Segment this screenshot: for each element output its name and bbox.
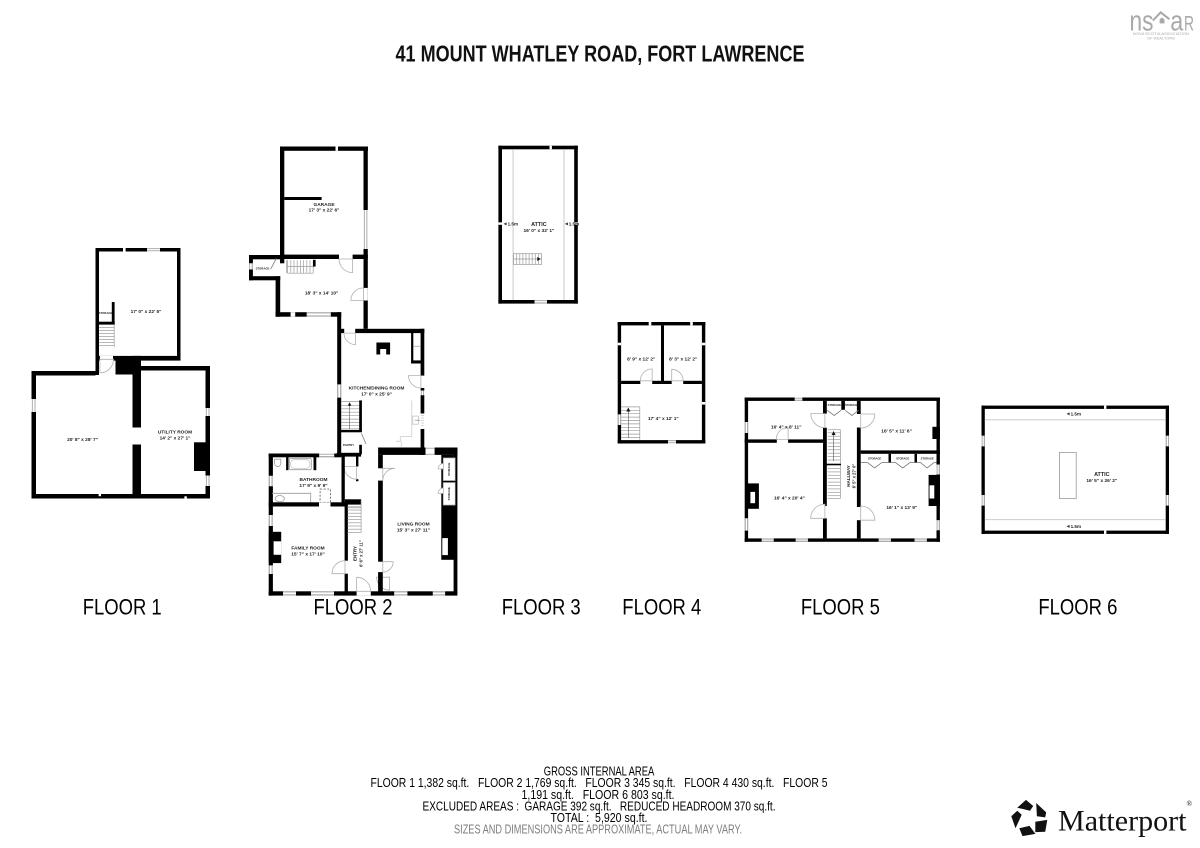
svg-text:ENTRY: ENTRY: [352, 546, 357, 561]
svg-text:STORAGE: STORAGE: [868, 457, 881, 461]
svg-text:HALLWAY: HALLWAY: [846, 465, 851, 487]
svg-text:STORAGE: STORAGE: [447, 487, 451, 500]
svg-text:STORAGE: STORAGE: [921, 457, 934, 461]
svg-text:ATTIC: ATTIC: [531, 222, 547, 228]
svg-text:20' 8" x 28' 7": 20' 8" x 28' 7": [67, 437, 98, 443]
svg-text:8' 3" x 12' 2": 8' 3" x 12' 2": [669, 356, 697, 362]
svg-text:GARAGE: GARAGE: [313, 202, 335, 208]
svg-text:STORAGE: STORAGE: [99, 311, 113, 315]
svg-text:STORAGE: STORAGE: [447, 462, 451, 475]
svg-text:FLOOR 2: FLOOR 2: [314, 595, 393, 620]
svg-text:BATHROOM: BATHROOM: [300, 477, 328, 483]
svg-text:41 MOUNT WHATLEY ROAD, FORT LA: 41 MOUNT WHATLEY ROAD, FORT LAWRENCE: [396, 41, 805, 67]
svg-text:STORAGE: STORAGE: [845, 403, 858, 407]
svg-text:16' 1" x 13' 9": 16' 1" x 13' 9": [886, 505, 917, 511]
svg-text:6' 5" x 27' 0": 6' 5" x 27' 0": [852, 464, 857, 489]
svg-text:FLOOR 1: FLOOR 1: [83, 595, 162, 620]
svg-text:FLOOR 5: FLOOR 5: [801, 595, 880, 620]
svg-text:17' 9" x 9' 9": 17' 9" x 9' 9": [299, 483, 327, 489]
svg-text:SIZES AND DIMENSIONS ARE APPRO: SIZES AND DIMENSIONS ARE APPROXIMATE, AC…: [454, 822, 742, 836]
svg-text:1.5m: 1.5m: [1071, 524, 1081, 529]
svg-text:KITCHEN/DINING ROOM: KITCHEN/DINING ROOM: [349, 386, 405, 392]
svg-text:1.5m: 1.5m: [508, 222, 518, 227]
svg-text:NOVA SCOTIA ASSOCIATION: NOVA SCOTIA ASSOCIATION: [1133, 32, 1190, 36]
svg-text:LIVING ROOM: LIVING ROOM: [397, 522, 429, 528]
svg-text:16' 4" x 8' 11": 16' 4" x 8' 11": [771, 425, 802, 431]
svg-text:STORAGE: STORAGE: [896, 457, 909, 461]
svg-text:STORAGE: STORAGE: [828, 403, 841, 407]
svg-text:15' 3" x 27' 11": 15' 3" x 27' 11": [397, 527, 430, 533]
svg-text:17' 0" x 25' 9": 17' 0" x 25' 9": [361, 392, 392, 398]
svg-text:PANTRY: PANTRY: [343, 443, 354, 447]
svg-text:STORAGE: STORAGE: [256, 266, 270, 270]
svg-text:17' 0" x 22' 5": 17' 0" x 22' 5": [131, 309, 162, 315]
svg-text:16' 5" x 11' 6": 16' 5" x 11' 6": [881, 428, 912, 434]
svg-text:FAMILY ROOM: FAMILY ROOM: [291, 546, 324, 552]
svg-text:Matterport: Matterport: [1058, 805, 1187, 838]
svg-text:16' 0" x 32' 1": 16' 0" x 32' 1": [523, 228, 554, 234]
svg-text:ATTIC: ATTIC: [1094, 472, 1110, 478]
svg-text:UTILITY ROOM: UTILITY ROOM: [158, 430, 192, 436]
svg-text:16' 4" x 20' 4": 16' 4" x 20' 4": [774, 496, 805, 502]
svg-text:FLOOR 4: FLOOR 4: [622, 595, 701, 620]
svg-text:®: ®: [1187, 799, 1193, 808]
svg-text:FLOOR 6: FLOOR 6: [1038, 595, 1117, 620]
svg-text:17' 3" x 22' 6": 17' 3" x 22' 6": [309, 208, 340, 214]
svg-text:FLOOR 3: FLOOR 3: [502, 595, 581, 620]
svg-text:17' 4" x 12' 1": 17' 4" x 12' 1": [648, 416, 679, 422]
svg-text:15' 7" x 17' 10": 15' 7" x 17' 10": [291, 551, 325, 557]
svg-text:6' 6" x 27' 11": 6' 6" x 27' 11": [358, 540, 363, 567]
svg-text:18' 3" x 14' 10": 18' 3" x 14' 10": [305, 290, 339, 296]
svg-text:8' 9" x 12' 2": 8' 9" x 12' 2": [627, 356, 655, 362]
svg-text:16' 5" x 26' 2": 16' 5" x 26' 2": [1086, 478, 1117, 484]
svg-text:1.5m: 1.5m: [569, 222, 579, 227]
svg-text:OF REALTORS: OF REALTORS: [1147, 37, 1176, 41]
svg-text:14' 2" x 27' 1": 14' 2" x 27' 1": [160, 436, 191, 442]
svg-text:1.5m: 1.5m: [1071, 412, 1081, 417]
